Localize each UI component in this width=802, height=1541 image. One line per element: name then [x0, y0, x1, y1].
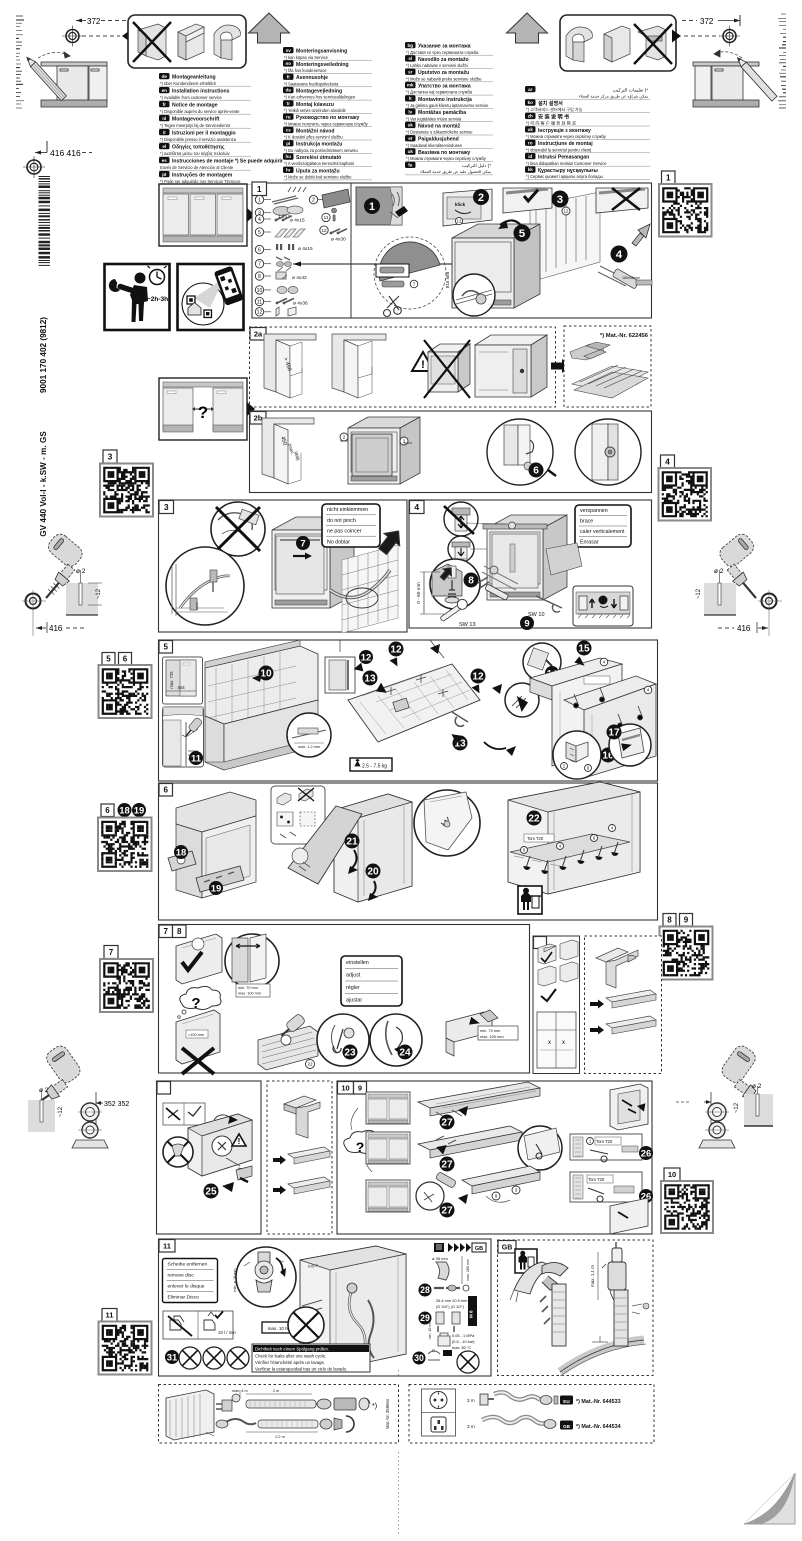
svg-text:1: 1: [369, 201, 375, 213]
svg-text:~12: ~12: [58, 1106, 64, 1117]
svg-text:pt: pt: [162, 172, 167, 177]
svg-text:설치 설명서: 설치 설명서: [538, 100, 563, 107]
svg-text:ø 2: ø 2: [714, 568, 724, 575]
svg-text:4: 4: [258, 217, 261, 223]
svg-text:Montagevejledning: Montagevejledning: [296, 89, 342, 95]
svg-text:x: x: [548, 1040, 551, 1046]
svg-text:22: 22: [528, 814, 540, 825]
svg-text:*) fås hos kundeservice: *) fås hos kundeservice: [284, 68, 327, 73]
svg-text:ø 2: ø 2: [39, 1087, 49, 1094]
svg-text:25: 25: [205, 1187, 217, 1198]
svg-text:*) Mat.-Nr. 644534: *) Mat.-Nr. 644534: [576, 1424, 621, 1430]
svg-text:10 l / min: 10 l / min: [218, 1330, 236, 1335]
svg-text:(G 3/4") (G 1/2"): (G 3/4") (G 1/2"): [436, 1304, 465, 1309]
svg-text:7: 7: [300, 538, 305, 549]
svg-text:x: x: [562, 1040, 565, 1046]
svg-text:*) Do nabycia za pośrednictwem: *) Do nabycia za pośrednictwem serwisu: [284, 148, 358, 153]
svg-text:2.2 m: 2.2 m: [275, 1435, 285, 1439]
svg-text:fr: fr: [163, 102, 167, 107]
svg-text:*) Može se nabaviti preko serv: *) Može se nabaviti preko servisne služb…: [406, 76, 482, 81]
svg-text:da: da: [286, 88, 292, 93]
svg-text:7: 7: [413, 282, 416, 287]
svg-text:10: 10: [257, 288, 263, 294]
svg-text:einstellen: einstellen: [346, 960, 369, 966]
svg-text:?: ?: [198, 403, 208, 422]
svg-text:5: 5: [258, 230, 261, 236]
svg-text:ø 2: ø 2: [76, 568, 86, 575]
svg-text:GB: GB: [475, 1246, 483, 1252]
svg-text:2: 2: [478, 192, 484, 204]
svg-text:5: 5: [106, 655, 111, 664]
svg-text:remove disc: remove disc: [168, 1273, 195, 1279]
svg-text:*) 고객서비스 센터에서 구입 가능: *) 고객서비스 센터에서 구입 가능: [526, 106, 583, 112]
svg-text:416: 416: [737, 624, 751, 633]
svg-text:2: 2: [343, 435, 346, 440]
svg-text:mk: mk: [407, 83, 414, 88]
svg-text:de: de: [162, 74, 168, 79]
svg-text:min. 70 mm: min. 70 mm: [480, 1028, 500, 1033]
svg-text:M 8: M 8: [469, 1310, 474, 1318]
svg-text:30: 30: [414, 1353, 424, 1363]
svg-text:2.5 - 7.5 kg: 2.5 - 7.5 kg: [362, 764, 387, 770]
svg-text:9001 170 402 (9812): 9001 170 402 (9812): [39, 317, 48, 393]
svg-text:8: 8: [667, 916, 672, 925]
svg-text:15: 15: [578, 644, 590, 655]
svg-text:Вказівка по монтажу: Вказівка по монтажу: [418, 150, 470, 156]
svg-text:ø 4x30: ø 4x30: [331, 237, 346, 243]
svg-text:Torx T20: Torx T20: [596, 1139, 613, 1144]
svg-text:*) Var iegādāties mūsu servisā: *) Var iegādāties mūsu servisā: [406, 116, 462, 121]
svg-text:Enrasar: Enrasar: [580, 540, 599, 546]
svg-text:*) K dostání přes servisní slu: *) K dostání přes servisní službu: [284, 135, 343, 140]
svg-text:6: 6: [164, 786, 169, 795]
svg-text:*) Достапно кај сервисната слу: *) Достапно кај сервисната служба: [406, 90, 473, 95]
svg-text:*) Saadaval klienditeeninduses: *) Saadaval klienditeeninduses: [406, 143, 462, 148]
svg-text:través de Servicio de Atención: través de Servicio de Atención al Client…: [160, 165, 234, 170]
svg-text:ø 4x15: ø 4x15: [298, 246, 313, 252]
svg-text:*) Можна отримати через сервіс: *) Можна отримати через сервісну службу: [406, 156, 487, 161]
svg-text:Istruzioni per il montaggio: Istruzioni per il montaggio: [172, 131, 236, 137]
svg-text:~2h-3h: ~2h-3h: [147, 296, 168, 303]
svg-text:0 - 60 mm: 0 - 60 mm: [416, 582, 422, 604]
svg-text:24: 24: [399, 1048, 411, 1059]
svg-text:19: 19: [211, 883, 222, 894]
svg-text:28: 28: [420, 1285, 430, 1295]
svg-text:*) Mat.-Nr. 644533: *) Mat.-Nr. 644533: [576, 1399, 621, 1405]
svg-text:6: 6: [533, 466, 539, 477]
svg-text:12: 12: [457, 219, 462, 224]
svg-text:Instruções de montagem: Instruções de montagem: [172, 173, 233, 179]
svg-text:Intruksi Pemasangan: Intruksi Pemasangan: [538, 155, 589, 161]
svg-text:5: 5: [519, 228, 526, 240]
svg-text:enlever le disque: enlever le disque: [168, 1284, 205, 1290]
svg-text:*) Можно получить через сервис: *) Можно получить через сервисную службу: [284, 121, 369, 126]
svg-text:372: 372: [700, 17, 714, 26]
svg-text:max. 1,1 m: max. 1,1 m: [590, 1265, 595, 1287]
svg-text:Montagevoorschrift: Montagevoorschrift: [172, 117, 220, 123]
svg-text:Құрастыру нұсқаулығы: Құрастыру нұсқаулығы: [538, 168, 598, 174]
svg-text:nl: nl: [162, 116, 166, 121]
svg-text:Check for leaks after one wash: Check for leaks after one wash cycle.: [255, 1354, 326, 1359]
svg-text:Montāžas pamācība: Montāžas pamācība: [418, 110, 466, 116]
svg-text:*) A vevőszolgálaton keresztül: *) A vevőszolgálaton keresztül kapható: [284, 161, 355, 166]
svg-text:9: 9: [684, 916, 689, 925]
svg-text:*) Lahko nabavite v servisni s: *) Lahko nabavite v servisni službi: [406, 63, 468, 68]
svg-text:13: 13: [364, 674, 376, 685]
svg-text:min. 10 mm: min. 10 mm: [428, 1321, 432, 1340]
svg-text:Montageanleitung: Montageanleitung: [172, 75, 216, 81]
svg-text:hu: hu: [285, 154, 291, 159]
svg-text:sv: sv: [286, 48, 292, 53]
svg-text:12: 12: [564, 209, 569, 214]
svg-text:0.05 - 1 MPa: 0.05 - 1 MPa: [452, 1333, 475, 1338]
svg-text:23: 23: [344, 1048, 356, 1059]
svg-text:max. 1.2 mm: max. 1.2 mm: [298, 745, 320, 749]
svg-text:18: 18: [176, 847, 187, 858]
svg-text:1: 1: [666, 173, 671, 183]
svg-text:180x35mm: 180x35mm: [622, 276, 640, 280]
svg-text:352 352: 352 352: [104, 1101, 129, 1108]
svg-text:Torx T20: Torx T20: [588, 1177, 605, 1182]
svg-text:6: 6: [123, 655, 128, 664]
svg-text:11: 11: [163, 1241, 171, 1250]
svg-text:~12: ~12: [96, 588, 102, 599]
svg-text:3 m: 3 m: [467, 1398, 475, 1403]
svg-text:6: 6: [258, 247, 261, 253]
svg-text:*) 可 向 客 户 服 务 处 购 买: *) 可 向 客 户 服 务 处 购 买: [526, 120, 576, 126]
svg-text:8: 8: [258, 274, 261, 280]
svg-text:*) Dostanete u zákazníckeho se: *) Dostanete u zákazníckeho servisu: [406, 130, 472, 135]
svg-text:Navodilo za montažo: Navodilo za montažo: [418, 57, 469, 63]
svg-text:Οδηγίες τοποθέτησης: Οδηγίες τοποθέτησης: [172, 145, 225, 151]
svg-text:es: es: [162, 158, 168, 163]
svg-text:*) Kan erhverves hos serviceaf: *) Kan erhverves hos serviceafdelingen: [284, 95, 356, 100]
svg-text:12: 12: [257, 310, 263, 316]
svg-text:~12: ~12: [696, 588, 702, 599]
svg-text:adjust: adjust: [346, 973, 361, 979]
svg-text:Installation instructions: Installation instructions: [172, 89, 230, 95]
svg-text:17: 17: [608, 728, 620, 739]
svg-text:11: 11: [106, 1311, 114, 1320]
svg-text:2: 2: [312, 197, 315, 203]
svg-text:GV 440 Vol-I - k.SW - m. GS: GV 440 Vol-I - k.SW - m. GS: [39, 431, 48, 537]
svg-text:!: !: [421, 359, 425, 371]
svg-text:Mat.-Nr. 359564: Mat.-Nr. 359564: [385, 1398, 390, 1429]
svg-text:ar: ar: [528, 87, 533, 92]
svg-text:3 m: 3 m: [467, 1424, 475, 1429]
svg-text:?: ?: [356, 1139, 365, 1155]
svg-text:max. 725: max. 725: [169, 671, 174, 689]
svg-text:Vérifiez l'étanchéité après un: Vérifiez l'étanchéité après un lavage.: [255, 1360, 325, 1365]
svg-text:max. 60 °C: max. 60 °C: [452, 1345, 471, 1350]
svg-text:9: 9: [495, 1194, 498, 1199]
svg-text:*) Доставя се чрез сервизната: *) Доставя се чрез сервизната служба: [406, 50, 479, 55]
svg-text:11: 11: [191, 753, 201, 764]
svg-text:*) Сервис қызметі арқылы алуға: *) Сервис қызметі арқылы алуға болады: [526, 174, 603, 179]
svg-text:7: 7: [258, 262, 261, 268]
svg-text:ø 4x15: ø 4x15: [290, 218, 305, 224]
svg-text:régler: régler: [346, 985, 360, 991]
svg-text:ru: ru: [286, 114, 291, 119]
svg-text:Monteringsveiledning: Monteringsveiledning: [296, 62, 349, 68]
svg-text:18: 18: [119, 805, 130, 816]
svg-text:GB: GB: [563, 1424, 571, 1429]
svg-text:Montaj kılavuzu: Montaj kılavuzu: [296, 102, 334, 108]
svg-text:Instrucciones de montaje *) S: Instrucciones de montaje *) Se puede adq…: [172, 159, 283, 165]
svg-text:21: 21: [346, 837, 358, 848]
svg-text:372: 372: [87, 17, 101, 26]
svg-text:Scheibe entfernen: Scheibe entfernen: [168, 1262, 208, 1268]
svg-text:يمكن الحصول عليه عن طريق خدمة: يمكن الحصول عليه عن طريق خدمة العملاء: [420, 169, 491, 174]
svg-text:31: 31: [167, 1352, 178, 1363]
svg-text:*) über Kundendienst erhältlic: *) über Kundendienst erhältlich: [160, 81, 217, 86]
svg-text:*) Available from customer ser: *) Available from customer service: [160, 95, 223, 100]
svg-text:3: 3: [164, 502, 169, 512]
svg-text:444: 444: [177, 685, 185, 690]
svg-text:26: 26: [641, 1148, 652, 1159]
svg-text:>100 mm: >100 mm: [188, 1033, 204, 1037]
svg-text:ø 4x36: ø 4x36: [293, 301, 308, 307]
svg-text:no: no: [285, 61, 291, 66]
svg-text:Eliminar Disco: Eliminar Disco: [168, 1295, 200, 1301]
svg-text:815 mm: 815 mm: [445, 272, 450, 289]
svg-text:id: id: [528, 154, 532, 159]
svg-text:*) bisa didapatkan melalui Cus: *) bisa didapatkan melalui Customer Serv…: [526, 161, 607, 166]
svg-text:7: 7: [109, 948, 114, 957]
svg-text:12: 12: [321, 228, 327, 233]
svg-text:max. 100 mm: max. 100 mm: [480, 1034, 504, 1039]
svg-text:bg: bg: [407, 43, 413, 48]
svg-text:7: 7: [164, 927, 169, 936]
svg-text:27: 27: [441, 1206, 453, 1217]
svg-text:lt: lt: [409, 96, 412, 101]
svg-text:hr: hr: [286, 168, 291, 173]
svg-text:(0.5 - 10 bar): (0.5 - 10 bar): [452, 1339, 475, 1344]
svg-text:3: 3: [557, 194, 563, 206]
svg-text:27: 27: [441, 1118, 453, 1129]
svg-text:Paigaldusjuhend: Paigaldusjuhend: [418, 137, 459, 143]
svg-text:Szerelési útmutató: Szerelési útmutató: [296, 155, 341, 161]
svg-text:*) Yetkili servis üzerinden al: *) Yetkili servis üzerinden alınabilir: [284, 108, 347, 113]
svg-text:2a: 2a: [254, 329, 263, 338]
svg-text:Інструкція з монтажу: Інструкція з монтажу: [538, 128, 591, 134]
svg-text:caler verticalement: caler verticalement: [580, 529, 625, 535]
svg-text:sk: sk: [408, 123, 414, 128]
svg-text:9: 9: [524, 618, 529, 629]
svg-text:*) Mat.-Nr. 622456: *) Mat.-Nr. 622456: [600, 333, 649, 339]
svg-text:11: 11: [257, 299, 262, 305]
svg-text:3: 3: [515, 1188, 518, 1193]
svg-text:en: en: [162, 88, 168, 93]
svg-text:4: 4: [665, 457, 670, 467]
svg-text:!: !: [238, 1137, 241, 1146]
svg-text:Monteringsanvisning: Monteringsanvisning: [296, 49, 347, 55]
svg-text:R: R: [432, 1349, 435, 1353]
svg-text:fa: fa: [408, 163, 413, 168]
svg-text:20: 20: [367, 867, 379, 878]
svg-text:it: it: [163, 130, 166, 135]
svg-text:~12: ~12: [734, 1102, 740, 1113]
svg-text:Руководство по монтажу: Руководство по монтажу: [296, 115, 359, 121]
svg-text:10: 10: [260, 669, 272, 680]
svg-text:SW 13: SW 13: [459, 622, 476, 628]
svg-text:ne pas coincer: ne pas coincer: [327, 529, 362, 535]
svg-text:19: 19: [134, 805, 145, 816]
svg-text:*) Saatavana huoltopalvelusta: *) Saatavana huoltopalvelusta: [284, 81, 339, 86]
svg-text:4: 4: [616, 249, 623, 261]
svg-text:*) kan köpas via Service: *) kan köpas via Service: [284, 55, 329, 60]
svg-text:5: 5: [164, 643, 169, 652]
svg-text:Torx T20: Torx T20: [527, 836, 544, 841]
svg-text:sr: sr: [408, 69, 413, 74]
svg-text:10: 10: [668, 1170, 676, 1179]
svg-text:Montavimo instrukcija: Montavimo instrukcija: [418, 97, 472, 103]
svg-text:uk: uk: [408, 149, 414, 154]
svg-text:Указание за монтажа: Указание за монтажа: [418, 44, 471, 50]
svg-text:Návod na montáž: Návod na montáž: [418, 123, 461, 129]
svg-text:Uputstvo za montažu: Uputstvo za montažu: [418, 70, 469, 76]
svg-text:12: 12: [472, 672, 484, 683]
svg-text:ro: ro: [528, 140, 533, 145]
svg-text:do not pinch: do not pinch: [327, 518, 356, 524]
svg-text:*) Можна отримати через сервіс: *) Можна отримати через сервісну службу: [526, 134, 607, 139]
svg-text:416: 416: [49, 624, 63, 633]
svg-text:zh: zh: [528, 114, 533, 119]
svg-text:Dichtheit nach einem Spülgang: Dichtheit nach einem Spülgang prüfen.: [255, 1347, 329, 1352]
svg-text:pl: pl: [286, 141, 290, 146]
svg-text:*) obtenabil la serviciul pent: *) obtenabil la serviciul pentru clienţi: [526, 147, 591, 152]
svg-text:tr: tr: [287, 101, 291, 106]
svg-text:ø 2: ø 2: [752, 1083, 762, 1090]
svg-text:lv: lv: [408, 109, 412, 114]
svg-text:No doblar: No doblar: [327, 540, 350, 546]
svg-text:uk: uk: [528, 127, 534, 132]
svg-text:12: 12: [361, 652, 372, 663]
svg-text:?: ?: [191, 995, 200, 1012]
svg-text:et: et: [408, 136, 413, 141]
svg-text:brace: brace: [580, 519, 593, 525]
svg-text:2b: 2b: [254, 413, 263, 422]
svg-text:Instrucţiune de montaj: Instrucţiune de montaj: [538, 141, 593, 147]
svg-text:*) Pode ser adquirido nos Serv: *) Pode ser adquirido nos Serviços Técni…: [160, 179, 240, 184]
svg-text:*) Disponible auprès du servic: *) Disponible auprès du service après-ve…: [160, 109, 240, 114]
svg-text:安 装 说 明 书: 安 装 说 明 书: [538, 113, 569, 120]
svg-text:max. 100 mm: max. 100 mm: [238, 992, 261, 996]
svg-text:يمكن شراؤه عن طريق مركز خدمة ا: يمكن شراؤه عن طريق مركز خدمة العملاء: [579, 93, 648, 98]
svg-text:Montážní návod: Montážní návod: [296, 128, 334, 134]
svg-text:ko: ko: [528, 100, 534, 105]
svg-text:min. ø 18 mm: min. ø 18 mm: [233, 1268, 237, 1291]
svg-text:10: 10: [341, 1083, 349, 1092]
svg-text:11: 11: [324, 215, 329, 220]
svg-text:ø 4x42: ø 4x42: [292, 275, 307, 281]
svg-text:Упатство за монтажа: Упатство за монтажа: [418, 84, 471, 90]
svg-text:8: 8: [177, 927, 182, 936]
svg-text:Instrukcja montażu: Instrukcja montażu: [296, 142, 342, 148]
svg-text:ajustar: ajustar: [346, 998, 362, 1004]
svg-text:nicht einklemmen: nicht einklemmen: [327, 507, 368, 513]
svg-text:26.4 mm 20.9 mm: 26.4 mm 20.9 mm: [436, 1298, 467, 1303]
svg-text:cs: cs: [286, 128, 292, 133]
svg-text:sl: sl: [408, 56, 412, 61]
svg-text:Verificar la estanqueidad tras: Verificar la estanqueidad tras un ciclo …: [255, 1367, 347, 1372]
svg-text:2 m: 2 m: [273, 1389, 279, 1393]
svg-text:min. 70 mm: min. 70 mm: [238, 986, 258, 990]
svg-text:4: 4: [414, 502, 419, 512]
svg-text:416 416: 416 416: [50, 148, 81, 158]
svg-text:12: 12: [390, 645, 402, 656]
svg-text:Asennusohje: Asennusohje: [296, 75, 328, 81]
svg-text:kk: kk: [528, 167, 534, 172]
svg-text:6: 6: [105, 806, 110, 815]
svg-text:*) Ją galima gauti klientų apt: *) Ją galima gauti klientų aptarnavimo s…: [406, 103, 489, 108]
svg-text:1: 1: [257, 184, 262, 194]
svg-text:EU: EU: [563, 1399, 570, 1404]
svg-text:27: 27: [441, 1160, 453, 1171]
svg-text:Notice de montage: Notice de montage: [172, 103, 218, 109]
svg-text:9: 9: [358, 1083, 362, 1092]
svg-text:*): *): [372, 1403, 377, 1410]
svg-text:GB: GB: [502, 1244, 513, 1251]
svg-text:fi: fi: [287, 74, 290, 79]
svg-text:*) Tegen meerprijs bij de Serv: *) Tegen meerprijs bij de Servicedienst: [160, 123, 231, 128]
svg-text:max. 280 mm: max. 280 mm: [466, 1259, 470, 1281]
svg-text:*) Διατίθεται μέσω του σέρβις: *) Διατίθεται μέσω του σέρβις πελατών: [160, 151, 230, 156]
svg-text:ø 38 mm: ø 38 mm: [432, 1256, 448, 1261]
svg-text:3: 3: [108, 452, 113, 462]
svg-text:verspannen: verspannen: [580, 508, 608, 514]
svg-text:*) Disponibile presso il servi: *) Disponibile presso il servizio assist…: [160, 137, 237, 142]
svg-text:*) Može se dobiti kod servisne: *) Može se dobiti kod servisne službe: [284, 175, 352, 180]
svg-text:22: 22: [307, 1062, 313, 1067]
svg-text:8: 8: [468, 576, 474, 587]
svg-text:klick: klick: [455, 202, 466, 207]
svg-text:Uputa za montažu: Uputa za montažu: [296, 168, 340, 174]
svg-text:el: el: [162, 144, 166, 149]
svg-text:1: 1: [258, 197, 261, 203]
